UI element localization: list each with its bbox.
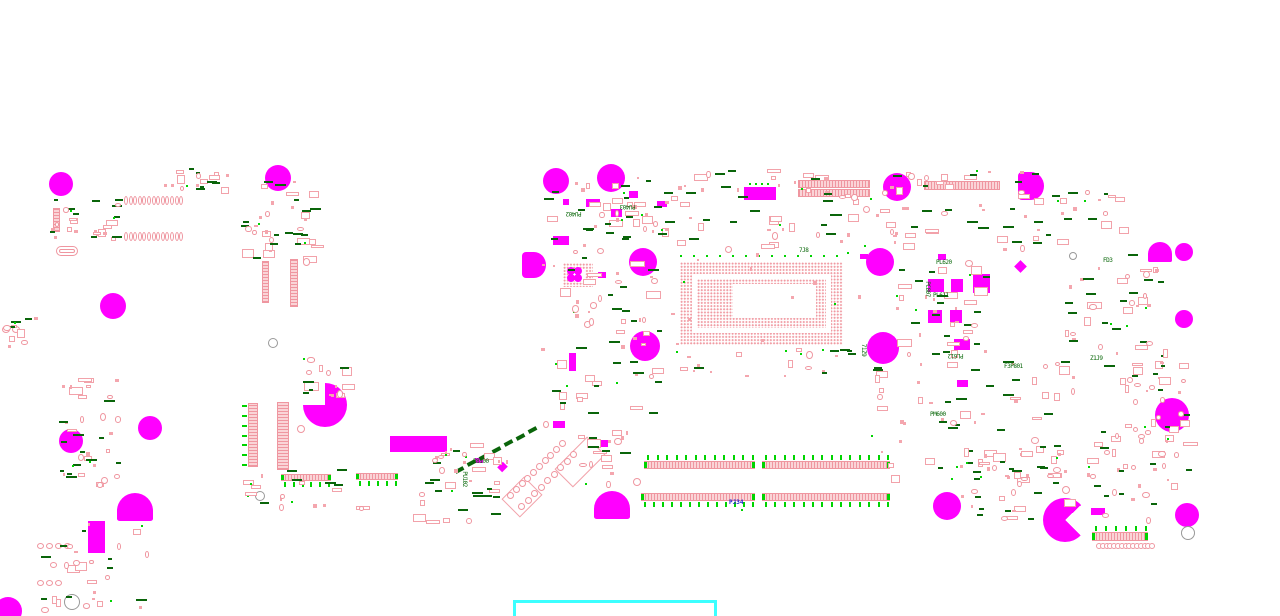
connector-tick xyxy=(812,502,814,507)
smd-outline xyxy=(319,365,323,371)
via-dot xyxy=(917,381,920,384)
via-dot xyxy=(899,440,902,444)
connector-tick xyxy=(1095,526,1097,531)
pin1-dot xyxy=(250,483,252,485)
smd-outline xyxy=(56,599,61,607)
pin1-dot xyxy=(847,252,849,254)
selection-box[interactable] xyxy=(513,600,717,616)
smd-outline xyxy=(845,194,851,198)
via-dot xyxy=(684,185,687,187)
connector xyxy=(1092,532,1148,541)
smd-outline xyxy=(342,384,355,390)
via-dot xyxy=(553,265,555,267)
connector-tick xyxy=(662,502,664,507)
via-dot xyxy=(575,314,578,318)
designator-mark xyxy=(1040,467,1048,469)
via-dot xyxy=(454,469,457,473)
pin1-dot xyxy=(801,188,803,190)
designator-mark xyxy=(491,513,502,515)
ring-pad xyxy=(1133,427,1138,432)
connector-endcap xyxy=(1092,533,1095,540)
designator-mark xyxy=(1119,493,1124,495)
via-dot xyxy=(971,505,973,508)
pin1-dot xyxy=(864,245,866,247)
via-dot xyxy=(54,236,57,239)
designator-mark xyxy=(694,367,704,369)
ring-pad xyxy=(1062,486,1070,494)
ring-pad xyxy=(419,492,426,497)
component-label: F3P801 xyxy=(1004,364,1023,370)
pin1-dot xyxy=(741,509,743,511)
smd-outline xyxy=(891,475,899,483)
pad-oval xyxy=(179,196,183,205)
connector-tick xyxy=(671,502,673,507)
designator-mark xyxy=(560,402,566,404)
ring-pad xyxy=(326,370,332,376)
mounting-hole xyxy=(0,597,22,616)
ring-pad xyxy=(268,338,278,348)
ring-pad xyxy=(1104,450,1110,455)
component-body xyxy=(629,191,638,198)
connector-tick xyxy=(707,502,709,507)
ring-pad xyxy=(245,226,251,233)
pad-oval xyxy=(152,232,156,241)
via-dot xyxy=(269,250,272,252)
connector-tick xyxy=(698,502,700,507)
connector-tick xyxy=(695,455,697,460)
ring-pad xyxy=(100,413,106,421)
smd-outline xyxy=(1169,426,1179,433)
ring-pad xyxy=(78,454,84,462)
ring-pad xyxy=(992,465,997,471)
ring-pad xyxy=(80,416,84,423)
smd-outline xyxy=(698,223,704,231)
ring-pad xyxy=(1011,489,1016,496)
via-dot xyxy=(594,225,597,228)
pin1-dot xyxy=(956,466,958,468)
via-dot xyxy=(737,188,740,192)
via-dot xyxy=(905,207,909,209)
designator-mark xyxy=(821,224,827,226)
designator-mark xyxy=(1010,208,1015,210)
ring-pad xyxy=(1129,300,1135,306)
ring-pad xyxy=(579,463,586,467)
designator-mark xyxy=(274,234,279,236)
pin1-dot xyxy=(303,358,305,360)
designator-mark xyxy=(932,314,940,316)
ring-pad xyxy=(1020,245,1025,252)
designator-mark xyxy=(264,181,273,183)
pin1-dot xyxy=(834,303,836,305)
ring-pad xyxy=(806,351,812,359)
smd-outline xyxy=(17,329,25,338)
designator-mark xyxy=(340,367,350,369)
designator-mark xyxy=(1012,470,1022,472)
designator-mark xyxy=(41,556,50,558)
connector-tick xyxy=(293,482,295,487)
designator-mark xyxy=(200,186,205,188)
designator-mark xyxy=(458,509,469,511)
ring-pad xyxy=(642,317,647,323)
designator-mark xyxy=(1112,328,1121,330)
designator-mark xyxy=(848,353,856,355)
connector-tick xyxy=(359,481,361,486)
connector-tick xyxy=(803,502,805,507)
ring-pad xyxy=(115,203,121,207)
diagonal-pad xyxy=(544,477,551,484)
designator-mark xyxy=(620,286,627,288)
via-dot xyxy=(621,345,625,349)
smd-outline xyxy=(78,473,85,477)
via-dot xyxy=(693,370,695,372)
ring-pad xyxy=(615,280,623,284)
smd-outline xyxy=(925,458,935,465)
smd-outline xyxy=(560,288,572,297)
ring-pad xyxy=(543,421,549,428)
via-dot xyxy=(929,402,933,405)
designator-mark xyxy=(948,427,958,429)
designator-mark xyxy=(285,232,292,234)
designator-mark xyxy=(983,276,990,278)
pin1-dot xyxy=(621,219,623,221)
designator-mark xyxy=(1186,469,1192,471)
mounting-hole-dome xyxy=(594,491,630,520)
designator-mark xyxy=(811,178,820,180)
via-dot xyxy=(678,186,682,190)
designator-mark xyxy=(189,168,194,170)
ring-pad xyxy=(1102,513,1110,519)
connector-endcap xyxy=(752,494,755,500)
pin1-dot xyxy=(676,351,678,353)
connector-tick xyxy=(242,464,247,466)
smd-outline xyxy=(896,187,904,196)
ring-pad xyxy=(1018,190,1024,195)
smd-outline xyxy=(918,397,923,404)
via-dot xyxy=(1136,305,1140,308)
ring-pad xyxy=(1089,304,1097,311)
via-dot xyxy=(1073,207,1077,210)
smd-outline xyxy=(106,220,118,225)
pin1-dot xyxy=(767,183,769,185)
pin1-dot xyxy=(779,224,781,226)
via-dot xyxy=(1012,510,1016,513)
cpu-perimeter-dot xyxy=(823,255,825,257)
component-body xyxy=(553,421,565,428)
diagonal-pad xyxy=(530,469,537,476)
designator-mark xyxy=(830,350,838,352)
via-dot xyxy=(652,230,655,233)
pin1-dot xyxy=(1057,200,1059,202)
ring-pad xyxy=(117,543,121,550)
via-dot xyxy=(139,606,141,609)
designator-mark xyxy=(66,596,72,598)
designator-mark xyxy=(1044,413,1053,415)
connector-tick xyxy=(714,455,716,460)
via-dot xyxy=(767,229,771,232)
designator-mark xyxy=(979,508,985,510)
ring-pad xyxy=(306,370,312,375)
designator-mark xyxy=(1083,278,1094,280)
designator-mark xyxy=(116,462,120,464)
pad-oval xyxy=(142,196,146,205)
connector-endcap xyxy=(887,494,890,500)
smd-outline xyxy=(642,216,652,224)
ring-pad xyxy=(1162,463,1166,470)
ring-pad xyxy=(1090,474,1095,479)
connector-tick xyxy=(868,455,870,460)
smd-outline xyxy=(1057,239,1069,246)
smd-outline xyxy=(578,435,585,439)
designator-mark xyxy=(293,233,303,235)
ring-pad xyxy=(890,229,894,235)
pin1-dot xyxy=(14,322,16,324)
smd-outline xyxy=(767,169,781,173)
designator-mark xyxy=(977,514,983,516)
designator-mark xyxy=(923,185,928,187)
smd-outline xyxy=(420,500,425,506)
connector-tick xyxy=(1145,526,1147,531)
via-dot xyxy=(840,240,843,243)
designator-mark xyxy=(967,221,978,223)
connector-tick xyxy=(793,455,795,460)
diagonal-pad xyxy=(525,497,532,504)
via-dot xyxy=(1098,267,1100,270)
pin1-dot xyxy=(1088,466,1090,468)
designator-mark xyxy=(973,471,981,473)
smd-outline xyxy=(87,580,96,584)
ring-pad xyxy=(1158,451,1165,457)
ring-pad xyxy=(1149,385,1155,390)
diagonal-part xyxy=(515,433,525,441)
smd-outline xyxy=(886,222,896,228)
designator-mark xyxy=(911,226,918,228)
designator-mark xyxy=(1129,292,1138,294)
ring-pad xyxy=(599,212,604,219)
smd-outline xyxy=(1060,198,1066,205)
via-dot xyxy=(982,209,985,211)
ring-pad xyxy=(1115,433,1119,439)
smd-outline xyxy=(559,392,567,400)
pin1-dot xyxy=(822,349,824,351)
designator-mark xyxy=(303,392,310,394)
via-dot xyxy=(542,264,544,266)
smd-outline xyxy=(1120,378,1126,385)
via-dot xyxy=(665,228,668,230)
ring-pad xyxy=(64,562,69,570)
designator-mark xyxy=(730,221,737,223)
designator-mark xyxy=(435,490,442,492)
designator-mark xyxy=(73,213,79,215)
ring-pad xyxy=(1071,388,1075,395)
designator-mark xyxy=(588,412,598,414)
ring-pad xyxy=(279,504,284,511)
designator-mark xyxy=(303,381,313,383)
component-label: PL611 xyxy=(933,293,949,299)
via-dot xyxy=(676,343,680,345)
ring-pad xyxy=(706,171,710,178)
smd-outline xyxy=(1094,442,1103,447)
smd-outline xyxy=(964,300,977,305)
connector-endcap xyxy=(762,462,765,468)
smd-outline xyxy=(133,529,141,534)
diagonal-pad xyxy=(507,492,514,499)
connector-endcap xyxy=(1145,533,1148,540)
smd-outline xyxy=(97,601,103,607)
designator-mark xyxy=(552,390,561,392)
via-dot xyxy=(541,348,544,351)
connector-endcap xyxy=(762,494,765,500)
component-label: Z1J9 xyxy=(1090,356,1102,362)
cpu-perimeter-dot xyxy=(784,255,786,257)
smd-outline xyxy=(1014,506,1026,512)
pad-oval xyxy=(161,196,165,205)
ring-pad xyxy=(971,489,978,495)
designator-mark xyxy=(823,200,833,202)
component-body xyxy=(569,353,576,371)
pad-oval xyxy=(152,196,156,205)
pin1-dot xyxy=(1145,307,1147,309)
component-body xyxy=(957,380,968,387)
via-dot xyxy=(1019,448,1023,451)
designator-mark xyxy=(310,208,321,210)
designator-mark xyxy=(50,231,55,233)
pad-oval xyxy=(55,580,62,586)
pad-oval xyxy=(175,232,179,241)
designator-mark xyxy=(493,496,500,498)
designator-mark xyxy=(847,350,853,352)
designator-mark xyxy=(899,269,906,271)
designator-mark xyxy=(260,502,269,504)
via-dot xyxy=(1131,498,1135,502)
ring-pad xyxy=(252,230,257,236)
smd-outline xyxy=(806,188,811,192)
via-dot xyxy=(463,461,466,463)
mounting-hole xyxy=(1175,310,1193,328)
designator-mark xyxy=(1033,242,1042,244)
connector-tick xyxy=(887,455,889,460)
smd-outline xyxy=(547,216,559,222)
smd-outline xyxy=(586,183,590,189)
via-dot xyxy=(1005,475,1009,478)
ring-pad xyxy=(615,210,619,217)
ring-pad xyxy=(337,390,343,397)
designator-mark xyxy=(295,243,301,245)
diagonal-pad xyxy=(564,458,571,465)
diagonal-pad xyxy=(519,480,526,487)
pin1-dot xyxy=(785,350,787,352)
pad-oval xyxy=(133,196,137,205)
via-dot xyxy=(259,216,263,219)
smd-outline xyxy=(880,209,890,214)
via-dot xyxy=(254,225,258,228)
connector-tick xyxy=(725,502,727,507)
via-dot xyxy=(894,241,896,244)
connector-tick xyxy=(784,502,786,507)
connector-endcap xyxy=(644,462,647,468)
diagonal-pad xyxy=(518,503,525,510)
connector-endcap xyxy=(328,475,331,480)
connector xyxy=(762,493,890,501)
smd-outline xyxy=(309,191,319,197)
ring-pad xyxy=(1156,415,1161,420)
designator-mark xyxy=(978,227,989,229)
component-body xyxy=(1014,260,1027,273)
designator-mark xyxy=(196,188,205,190)
smd-outline xyxy=(251,485,260,490)
ring-pad xyxy=(89,560,93,564)
designator-mark xyxy=(425,482,434,484)
smd-outline xyxy=(979,462,989,465)
smd-outline xyxy=(899,295,904,301)
smd-outline xyxy=(221,187,229,194)
designator-mark xyxy=(212,182,220,184)
designator-mark xyxy=(1052,195,1059,197)
pin1-dot xyxy=(969,274,971,276)
designator-mark xyxy=(552,191,559,193)
designator-mark xyxy=(92,200,100,202)
designator-mark xyxy=(1128,254,1138,256)
designator-mark xyxy=(73,464,81,466)
designator-mark xyxy=(115,199,123,201)
designator-mark xyxy=(738,196,748,198)
component-label: PU102 xyxy=(461,471,467,487)
via-dot xyxy=(756,253,759,257)
via-dot xyxy=(1064,470,1067,473)
via-dot xyxy=(115,379,119,383)
designator-mark xyxy=(657,330,662,332)
designator-mark xyxy=(970,174,977,176)
smd-outline xyxy=(443,518,450,523)
pad-oval xyxy=(124,196,128,205)
designator-mark xyxy=(99,437,104,439)
designator-mark xyxy=(997,429,1005,431)
designator-mark xyxy=(66,476,76,478)
designator-mark xyxy=(25,318,32,320)
designator-mark xyxy=(302,210,311,212)
designator-mark xyxy=(974,311,981,313)
smd-outline xyxy=(603,203,611,211)
smd-outline xyxy=(941,174,947,182)
designator-mark xyxy=(937,302,944,304)
via-dot xyxy=(984,454,988,458)
designator-mark xyxy=(986,385,994,387)
via-dot xyxy=(583,244,586,247)
connector-tick xyxy=(765,455,767,460)
ring-pad xyxy=(651,278,658,284)
ring-pad xyxy=(1134,383,1141,387)
designator-mark xyxy=(1120,300,1127,302)
pin1-dot xyxy=(1126,325,1128,327)
designator-mark xyxy=(337,469,347,471)
via-dot xyxy=(164,184,166,187)
via-dot xyxy=(784,375,786,377)
designator-mark xyxy=(609,341,620,343)
ring-pad xyxy=(73,560,80,567)
smd-outline xyxy=(209,175,220,180)
smd-outline xyxy=(616,330,625,334)
pin1-dot xyxy=(616,382,618,384)
designator-mark xyxy=(703,219,710,221)
connector xyxy=(281,474,331,481)
smd-outline xyxy=(1135,345,1147,350)
mounting-hole xyxy=(867,332,899,364)
pad-oval xyxy=(156,196,160,205)
via-dot xyxy=(469,480,473,483)
pad-oval xyxy=(129,196,133,205)
via-dot xyxy=(291,206,294,209)
smd-outline xyxy=(938,267,947,274)
diagonal-pad xyxy=(559,440,566,447)
